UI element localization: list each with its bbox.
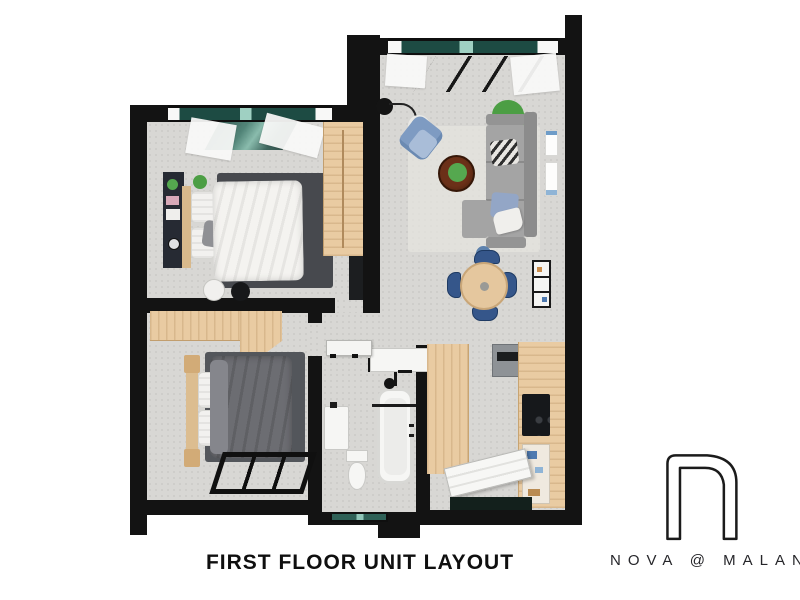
- entry-threshold: [450, 497, 532, 510]
- wall-left: [130, 105, 147, 535]
- wall-kitchen-bottom: [430, 510, 582, 525]
- wall-right: [565, 15, 582, 525]
- towel-hook-2: [409, 434, 414, 437]
- wall-bed2-right-upper: [308, 313, 322, 323]
- sofa-armrest-top: [486, 114, 526, 125]
- bathroom-window: [330, 512, 388, 522]
- bathroom-vanity: [324, 406, 349, 450]
- kitchen-cooktop: [522, 394, 550, 436]
- shower-screen: [372, 404, 416, 407]
- bedroom1-side-table-black: [231, 282, 250, 301]
- bedroom2-bedpost-top: [184, 355, 200, 373]
- bedroom2-floor-window: [209, 452, 317, 494]
- shelf-round-mirror: [168, 238, 180, 250]
- wall-art-top: [545, 130, 558, 156]
- shower-arm: [394, 372, 397, 386]
- bedroom1-wardrobe-handle: [342, 130, 344, 248]
- wall-bottom-step: [378, 522, 420, 538]
- living-curtain-right: [510, 53, 560, 96]
- shelf-pink-box: [166, 196, 179, 205]
- sofa-chaise: [462, 200, 488, 238]
- bedroom1-bed-duvet: [212, 180, 304, 282]
- dining-chair-west: [447, 272, 461, 298]
- dining-table-vase: [480, 282, 489, 291]
- living-window: [388, 38, 558, 55]
- sofa-backrest: [524, 112, 537, 237]
- wall-bedroom2-bottom: [130, 500, 322, 515]
- shelf-plant: [167, 179, 178, 190]
- floorplan-canvas: FIRST FLOOR UNIT LAYOUT NOVA @ MALAN: [0, 0, 800, 600]
- bathtub-inner: [384, 398, 407, 475]
- dining-wall-shelf: [532, 260, 551, 308]
- towel-hook-1: [409, 424, 414, 427]
- bedroom2-sheet-fold: [210, 360, 228, 454]
- wall-divider-bed1-living: [363, 105, 380, 313]
- shelf-towel-stack: [166, 209, 180, 220]
- sofa-armrest-bottom: [486, 237, 526, 248]
- bedroom2-doorway-floor: [308, 323, 322, 356]
- toilet-tank: [346, 450, 368, 462]
- shower-rail: [398, 370, 412, 373]
- caption: FIRST FLOOR UNIT LAYOUT: [130, 551, 590, 575]
- wall-art-bottom: [545, 162, 558, 196]
- toilet-bowl: [348, 462, 366, 490]
- coffee-table-plant: [448, 163, 467, 182]
- sofa-pillow-chevron: [490, 138, 520, 166]
- kitchen-counter-white: [370, 348, 428, 372]
- vanity-faucet: [330, 402, 337, 408]
- bedroom2-bedpost-bottom: [184, 449, 200, 467]
- bedroom1-side-table-white: [203, 279, 225, 301]
- kitchen-counter-left: [427, 344, 469, 474]
- bedroom1-plant: [193, 175, 207, 189]
- bedroom1-headboard: [182, 186, 191, 268]
- living-curtain-left: [385, 54, 427, 89]
- hall-door-hinge-2: [352, 354, 358, 358]
- brand-name: NOVA @ MALAN: [610, 552, 800, 569]
- bedroom1-curtain-left: [185, 117, 237, 160]
- bedroom1-dark-unit: [349, 256, 363, 300]
- bedroom1-doorway-floor: [335, 298, 363, 313]
- hall-door-hinge-1: [330, 354, 336, 358]
- brand-logo-n-monogram: [663, 447, 745, 541]
